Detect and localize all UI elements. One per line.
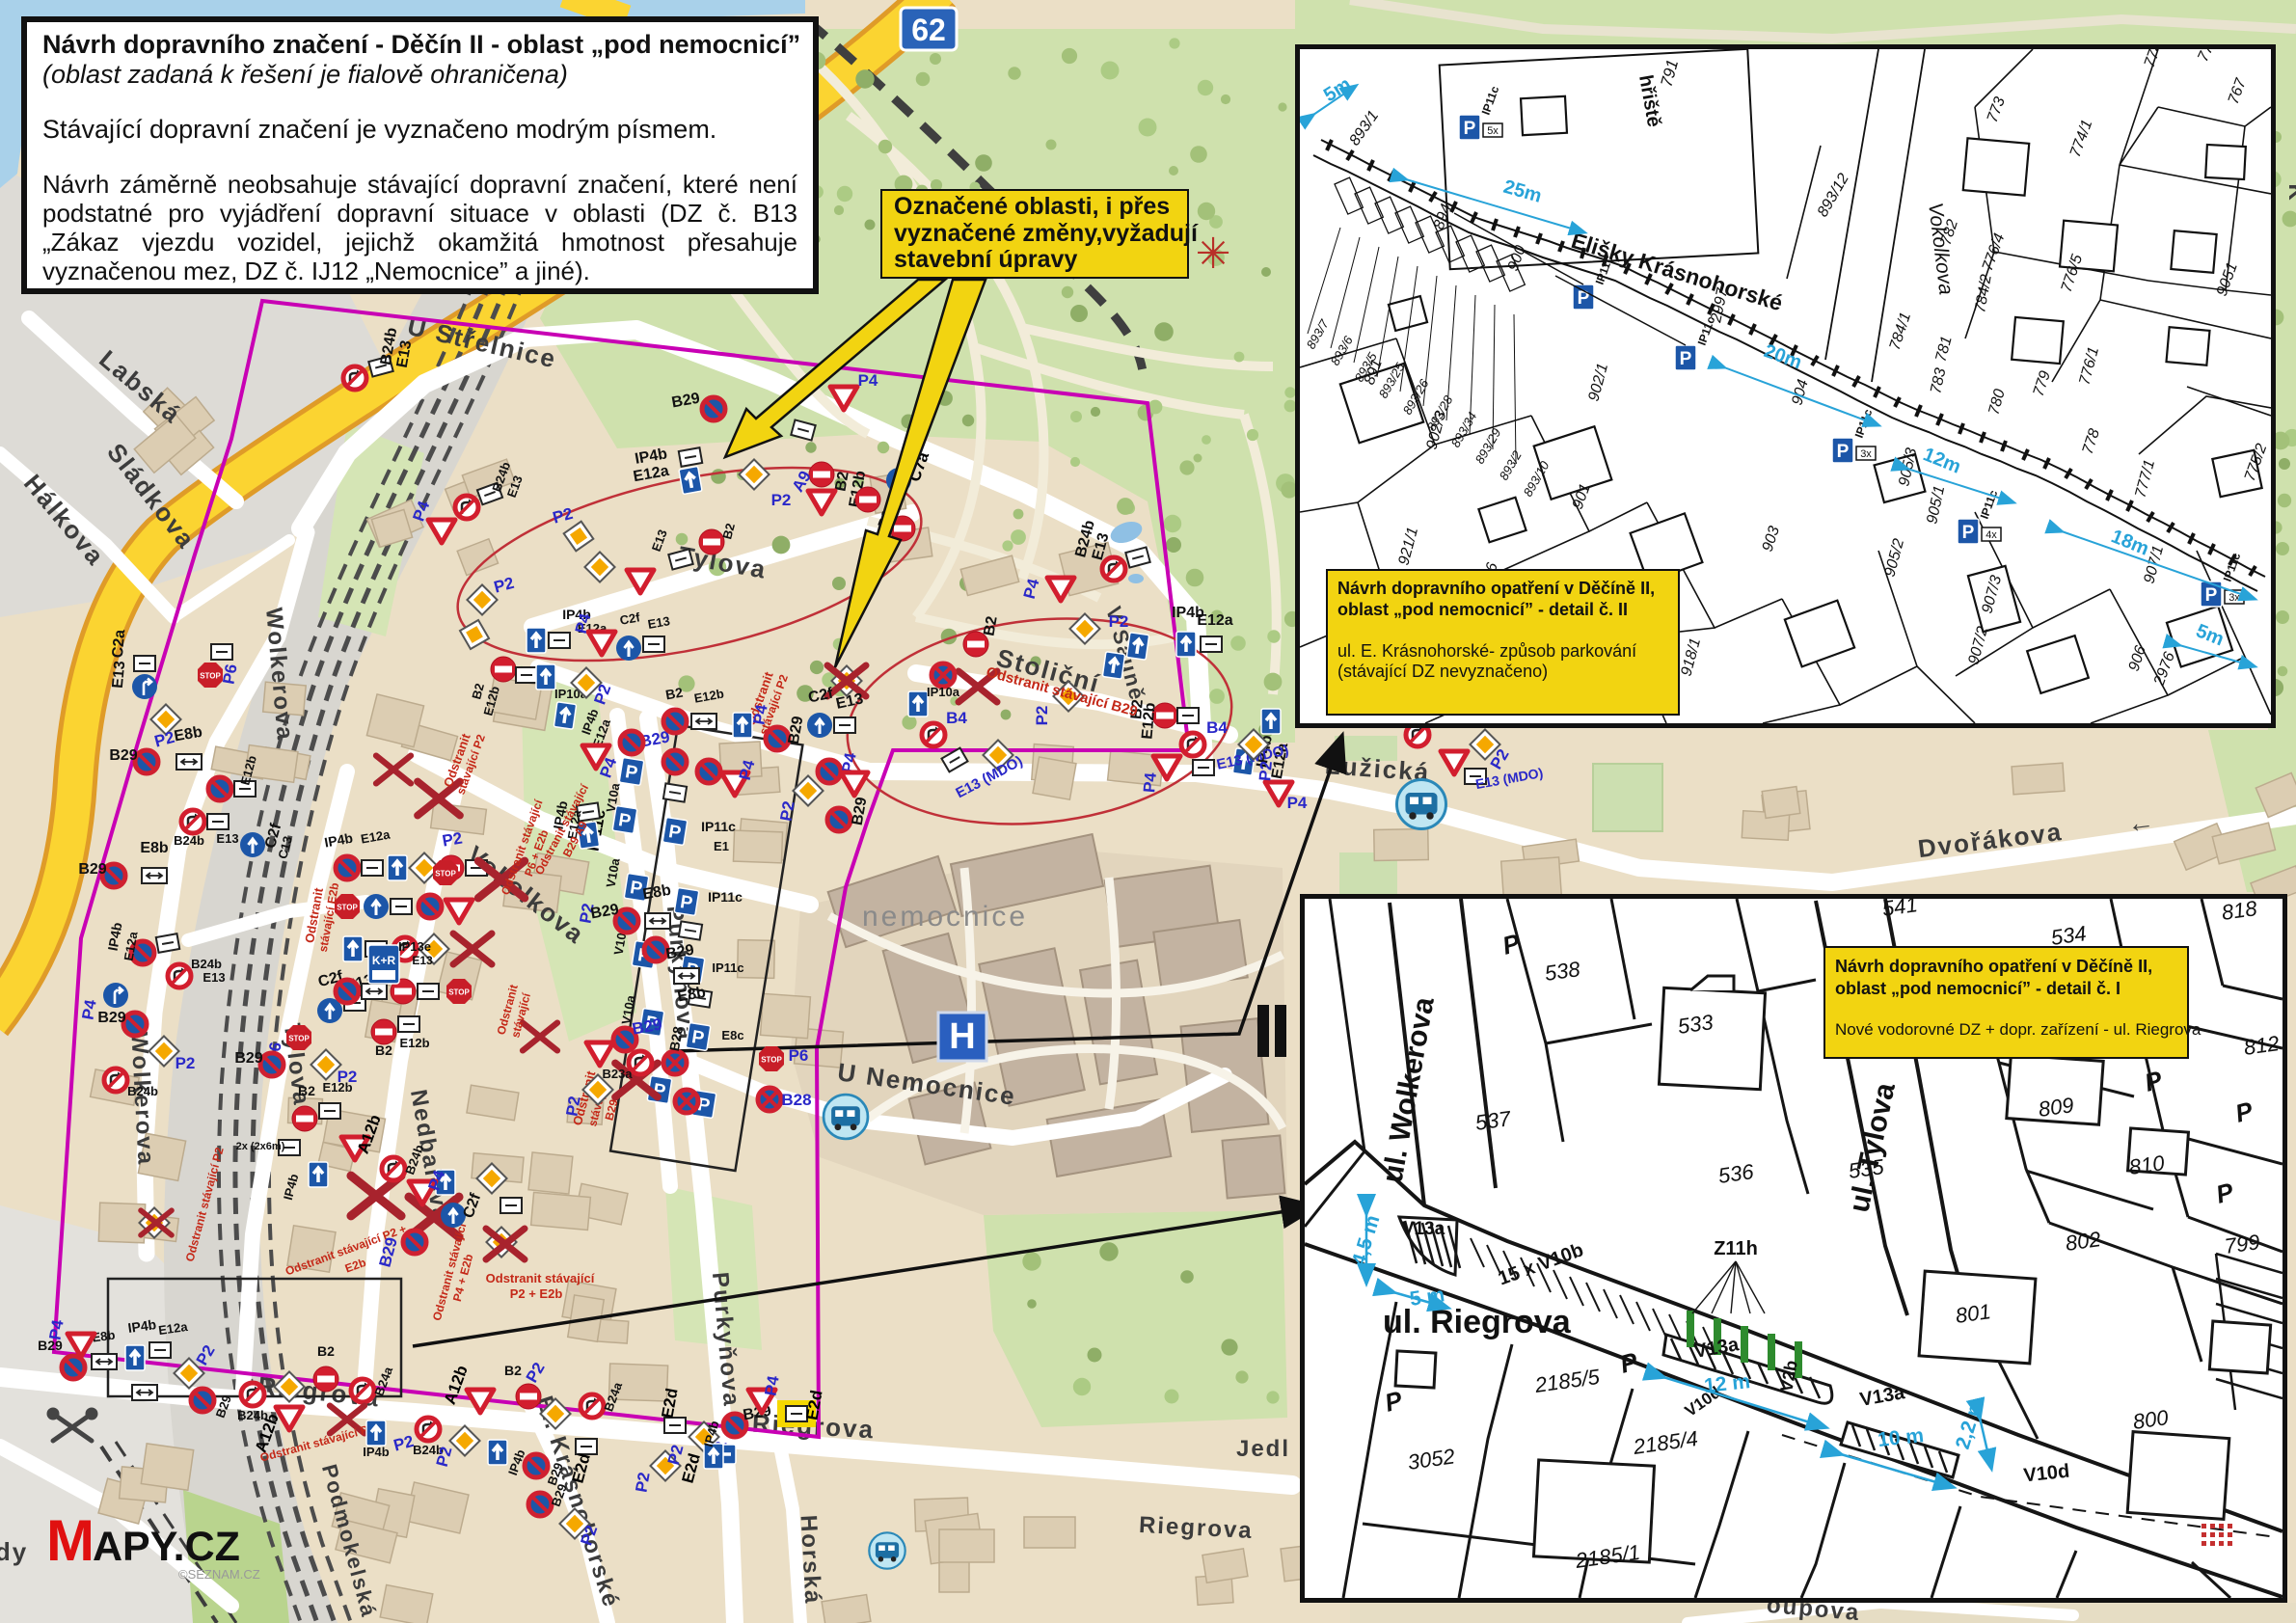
svg-text:809: 809 — [2037, 1093, 2075, 1122]
svg-text:902/1: 902/1 — [1585, 362, 1611, 403]
svg-text:533: 533 — [1676, 1010, 1715, 1039]
svg-text:12 m: 12 m — [1703, 1370, 1751, 1397]
svg-text:905/2: 905/2 — [1881, 537, 1907, 579]
svg-text:893/2: 893/2 — [1497, 447, 1526, 482]
svg-text:P: P — [2213, 1177, 2237, 1209]
svg-text:536: 536 — [1716, 1159, 1756, 1188]
svg-text:9051: 9051 — [2214, 260, 2241, 298]
svg-text:IP11c: IP11c — [1479, 84, 1502, 117]
svg-text:5x: 5x — [1487, 125, 1499, 137]
svg-text:P: P — [1382, 1385, 1406, 1418]
svg-text:893/1: 893/1 — [1346, 108, 1382, 149]
svg-text:921/1: 921/1 — [1395, 526, 1421, 567]
svg-text:Vokolkova: Vokolkova — [1924, 202, 1958, 296]
svg-text:25m: 25m — [1501, 176, 1545, 207]
svg-text:20m: 20m — [1761, 340, 1804, 373]
svg-text:893/34: 893/34 — [1448, 410, 1480, 450]
svg-text:918/1: 918/1 — [1678, 636, 1704, 678]
svg-text:774/2: 774/2 — [2142, 49, 2171, 69]
svg-text:P: P — [1837, 442, 1850, 462]
svg-text:ul. Tylova: ul. Tylova — [1843, 1080, 1902, 1215]
svg-text:2185/4: 2185/4 — [1631, 1426, 1699, 1459]
svg-text:2976: 2976 — [2150, 650, 2178, 689]
svg-text:893/12: 893/12 — [1815, 171, 1852, 220]
svg-text:V13a: V13a — [1858, 1382, 1907, 1411]
svg-text:799: 799 — [2223, 1230, 2261, 1258]
svg-text:P: P — [1464, 119, 1476, 139]
svg-text:P: P — [2142, 1065, 2166, 1097]
svg-text:ul. Wolkerova: ul. Wolkerova — [1377, 994, 1441, 1185]
svg-text:767: 767 — [2226, 75, 2250, 106]
svg-text:906: 906 — [2126, 643, 2149, 673]
svg-text:P: P — [1962, 523, 1975, 543]
svg-text:778: 778 — [2080, 426, 2103, 456]
svg-text:P: P — [1680, 349, 1692, 369]
svg-text:801: 801 — [1954, 1299, 1992, 1328]
svg-text:905/1: 905/1 — [1924, 484, 1948, 526]
svg-text:776/1: 776/1 — [2076, 345, 2102, 387]
svg-text:779: 779 — [2031, 368, 2054, 398]
svg-text:812: 812 — [2242, 1031, 2281, 1060]
svg-text:P: P — [2205, 585, 2218, 606]
svg-text:783: 783 — [1928, 366, 1949, 395]
svg-text:802: 802 — [2064, 1227, 2102, 1256]
svg-text:12m: 12m — [1920, 444, 1963, 477]
svg-text:781: 781 — [1932, 335, 1955, 364]
svg-text:Z11h: Z11h — [1714, 1238, 1758, 1259]
svg-text:893/7: 893/7 — [1304, 316, 1333, 351]
svg-text:777/1: 777/1 — [2132, 458, 2158, 500]
svg-text:541: 541 — [1880, 899, 1919, 921]
svg-text:P: P — [2232, 1096, 2256, 1128]
svg-text:538: 538 — [1543, 957, 1582, 986]
svg-text:2,2 m: 2,2 m — [1952, 1395, 1988, 1451]
svg-text:784/2: 784/2 — [1972, 273, 1995, 313]
svg-text:907/2: 907/2 — [1965, 625, 1991, 666]
svg-text:818: 818 — [2220, 899, 2259, 925]
svg-text:800: 800 — [2131, 1405, 2171, 1434]
svg-text:IP11c: IP11c — [1695, 314, 1718, 347]
svg-text:893/28: 893/28 — [1424, 392, 1456, 434]
svg-text:780: 780 — [1985, 388, 2008, 417]
svg-text:772/6: 772/6 — [2195, 49, 2226, 65]
svg-text:535: 535 — [1847, 1154, 1886, 1183]
svg-text:893/6: 893/6 — [1328, 333, 1357, 367]
svg-text:537: 537 — [1473, 1106, 1513, 1135]
svg-text:810: 810 — [2127, 1150, 2167, 1179]
svg-text:V10d: V10d — [2022, 1461, 2070, 1487]
svg-text:774/1: 774/1 — [2067, 118, 2096, 159]
svg-text:3x: 3x — [1860, 448, 1872, 460]
svg-text:V13a: V13a — [1402, 1219, 1445, 1239]
svg-text:3052: 3052 — [1406, 1444, 1456, 1474]
svg-text:773: 773 — [1985, 95, 2009, 124]
svg-text:784/1: 784/1 — [1887, 311, 1915, 352]
svg-text:4x: 4x — [1985, 529, 1997, 541]
svg-text:2185/5: 2185/5 — [1532, 1365, 1602, 1397]
svg-text:776/4: 776/4 — [1980, 231, 2009, 274]
svg-text:903: 903 — [1760, 524, 1783, 554]
svg-text:791: 791 — [1658, 58, 1683, 89]
